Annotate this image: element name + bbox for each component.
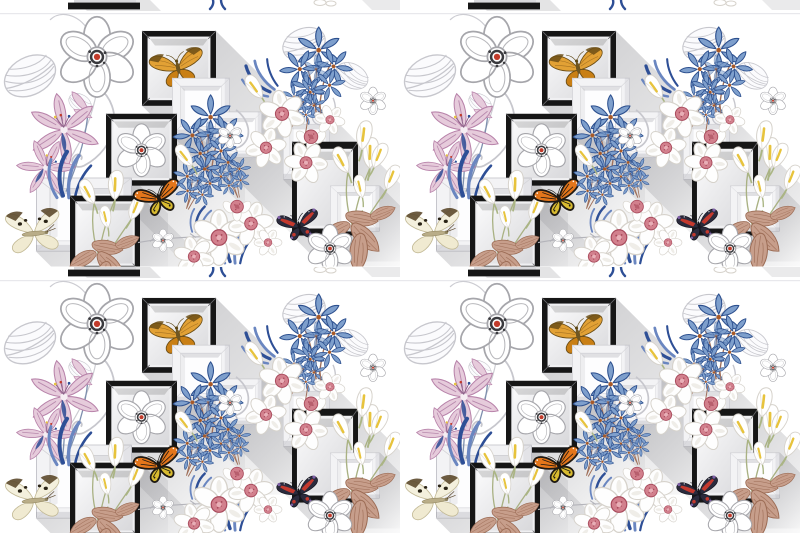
pattern-tile-r2-c2 — [400, 267, 800, 533]
pattern-tile-r2-c1 — [0, 267, 400, 533]
pattern-tile-r1-c1 — [0, 0, 400, 267]
pattern-grid — [0, 0, 800, 533]
pattern-tile-r1-c2 — [400, 0, 800, 267]
